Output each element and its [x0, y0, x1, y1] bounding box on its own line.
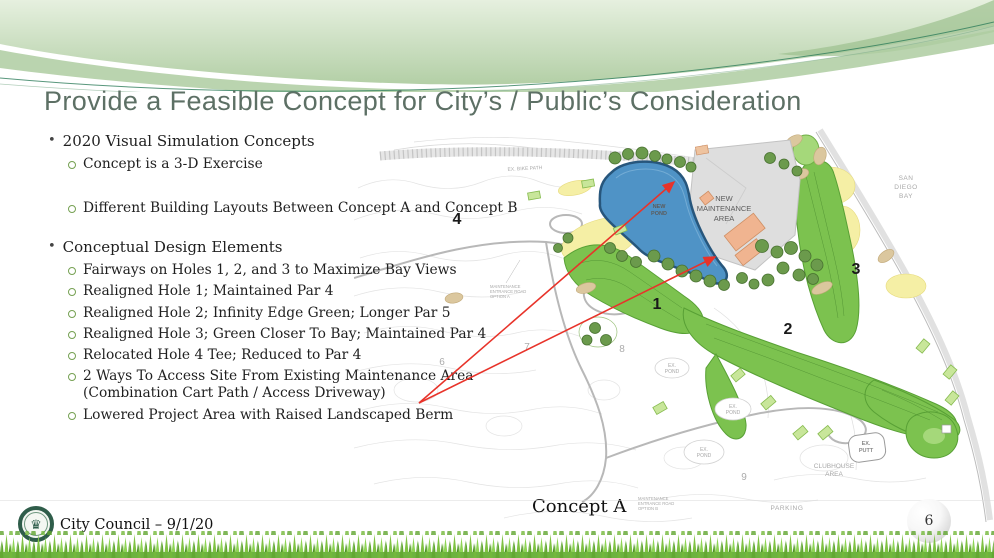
svg-text:AREA: AREA — [825, 471, 843, 478]
svg-text:9: 9 — [741, 472, 747, 483]
svg-text:DIEGO: DIEGO — [894, 184, 917, 191]
slide: EX. PUTT EX. BIKE PATH SAN DIEGO BAY EX.… — [0, 0, 994, 558]
page-number: 6 — [925, 513, 934, 529]
svg-text:POND: POND — [726, 410, 741, 416]
bullet-item: Different Building Layouts Between Conce… — [68, 200, 518, 217]
svg-text:SAN: SAN — [899, 175, 914, 182]
svg-text:BAY: BAY — [899, 193, 913, 200]
bullet-item: Realigned Hole 2; Infinity Edge Green; L… — [68, 305, 518, 322]
footer-divider — [0, 500, 994, 501]
svg-text:PUTT: PUTT — [859, 448, 874, 454]
bullet-circle-icon — [68, 161, 76, 169]
bullet-dot-icon: • — [48, 239, 56, 255]
svg-text:POND: POND — [665, 369, 680, 375]
bullet-circle-icon — [68, 412, 76, 420]
svg-text:AREA: AREA — [714, 214, 734, 223]
bullet-dot-icon: • — [48, 133, 56, 149]
bullet-circle-icon — [68, 267, 76, 275]
svg-text:7: 7 — [524, 342, 530, 353]
svg-text:8: 8 — [619, 344, 625, 355]
bullet-item: Relocated Hole 4 Tee; Reduced to Par 4 — [68, 347, 518, 364]
bullet-item: Lowered Project Area with Raised Landsca… — [68, 407, 518, 424]
svg-text:NEW: NEW — [653, 204, 667, 210]
svg-text:PARKING: PARKING — [771, 505, 804, 512]
bullet-item: 2 Ways To Access Site From Existing Main… — [68, 368, 518, 402]
bullet-item: Realigned Hole 1; Maintained Par 4 — [68, 283, 518, 300]
page-title: Provide a Feasible Concept for City’s / … — [44, 86, 974, 117]
svg-text:POND: POND — [651, 211, 667, 217]
bullet-list: • 2020 Visual Simulation Concepts Concep… — [40, 132, 518, 424]
bullet-item: Concept is a 3-D Exercise — [68, 156, 518, 173]
svg-text:MAINTENANCE: MAINTENANCE — [697, 204, 752, 213]
svg-text:2: 2 — [784, 321, 793, 338]
bullet-circle-icon — [68, 288, 76, 296]
bullet-item: • 2020 Visual Simulation Concepts — [40, 132, 518, 150]
grass-strip-decoration — [0, 531, 994, 558]
bullet-circle-icon — [68, 331, 76, 339]
bullet-circle-icon — [68, 310, 76, 318]
bullet-item: • Conceptual Design Elements — [40, 238, 518, 256]
bullet-circle-icon — [68, 205, 76, 213]
svg-text:NEW: NEW — [715, 194, 733, 203]
bullet-item: Fairways on Holes 1, 2, and 3 to Maximiz… — [68, 262, 518, 279]
svg-text:3: 3 — [852, 261, 861, 278]
bullet-circle-icon — [68, 373, 76, 381]
bullet-item: Realigned Hole 3; Green Closer To Bay; M… — [68, 326, 518, 343]
ex-putt-area: EX. PUTT — [847, 432, 886, 464]
svg-text:CLUBHOUSE: CLUBHOUSE — [814, 463, 855, 470]
svg-text:POND: POND — [697, 453, 712, 459]
svg-text:OPTION B: OPTION B — [638, 506, 658, 511]
header-swoosh-decoration — [0, 0, 994, 92]
bullet-circle-icon — [68, 352, 76, 360]
svg-text:1: 1 — [653, 296, 662, 313]
svg-text:EX.: EX. — [862, 441, 871, 447]
